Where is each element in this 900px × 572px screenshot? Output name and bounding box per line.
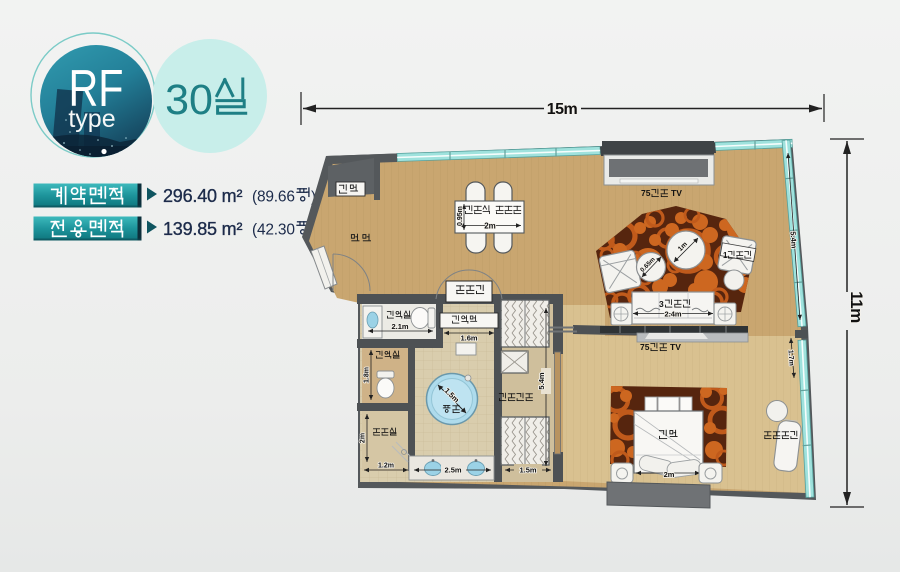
- svg-text:(89.66: (89.66: [252, 189, 295, 206]
- svg-text:15m: 15m: [547, 101, 578, 118]
- svg-text:75: 75: [640, 342, 650, 352]
- svg-text:139.85 m²: 139.85 m²: [163, 219, 242, 239]
- svg-text:30: 30: [165, 76, 213, 124]
- svg-text:11m: 11m: [847, 291, 866, 323]
- svg-text:296.40 m²: 296.40 m²: [163, 186, 242, 206]
- svg-text:5.4m: 5.4m: [537, 372, 546, 389]
- svg-text:type: type: [68, 105, 115, 133]
- svg-text:3: 3: [659, 299, 664, 309]
- svg-text:2.1m: 2.1m: [391, 322, 408, 331]
- svg-text:0.95m: 0.95m: [457, 206, 464, 226]
- svg-text:1.8m: 1.8m: [364, 367, 371, 383]
- svg-text:TV: TV: [671, 188, 682, 198]
- svg-text:2m: 2m: [360, 433, 367, 443]
- svg-text:75: 75: [641, 188, 651, 198]
- svg-text:2.5m: 2.5m: [444, 466, 461, 475]
- svg-text:(42.30: (42.30: [252, 222, 295, 239]
- svg-text:5.4m: 5.4m: [788, 231, 798, 249]
- svg-text:1.6m: 1.6m: [460, 334, 477, 343]
- svg-text:TV: TV: [670, 342, 681, 352]
- svg-text:1.7m: 1.7m: [786, 350, 794, 366]
- svg-text:2m: 2m: [664, 470, 675, 479]
- svg-text:2.4m: 2.4m: [664, 310, 681, 319]
- svg-text:2m: 2m: [484, 222, 496, 231]
- svg-text:1.2m: 1.2m: [378, 463, 394, 470]
- svg-text:1: 1: [723, 251, 728, 260]
- svg-text:1.5m: 1.5m: [519, 466, 536, 475]
